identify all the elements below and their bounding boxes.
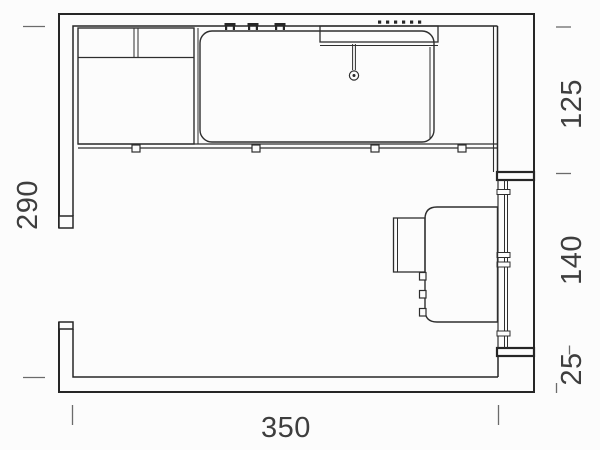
window bbox=[497, 180, 510, 348]
table bbox=[425, 207, 498, 322]
kitchen-run bbox=[78, 21, 497, 173]
pull-cord bbox=[353, 44, 356, 70]
counter-knob-4 bbox=[458, 145, 466, 152]
chair bbox=[394, 218, 426, 272]
dim-label-left: 290 bbox=[12, 180, 44, 230]
inner-wall-bottom bbox=[73, 329, 498, 377]
floor-plan-canvas: 290 125 140 25 350 bbox=[0, 0, 600, 450]
pull-cord-ring-dot bbox=[353, 74, 356, 77]
dim-label-right-top: 125 bbox=[556, 79, 588, 129]
dimension-annotations: 290 125 140 25 350 bbox=[12, 27, 588, 445]
door-jamb-upper bbox=[59, 216, 73, 228]
counter-knob-3 bbox=[371, 145, 379, 152]
wall-cabinet-left bbox=[78, 28, 194, 144]
dim-label-right-bottom: 25 bbox=[556, 352, 588, 385]
table-group bbox=[394, 207, 498, 322]
counter-knob-2 bbox=[252, 145, 260, 152]
window-mullion-top bbox=[497, 190, 510, 195]
window-jamb-lower bbox=[497, 348, 534, 356]
window-jamb-upper bbox=[497, 172, 534, 180]
counter-front-line bbox=[78, 144, 497, 148]
table-knob-2 bbox=[420, 291, 427, 299]
window-mullion-bottom bbox=[497, 331, 510, 336]
floor-plan-drawing: 290 125 140 25 350 bbox=[0, 0, 600, 450]
table-knob-3 bbox=[420, 309, 427, 317]
walls bbox=[59, 14, 534, 392]
table-knob-1 bbox=[420, 273, 427, 281]
dim-label-right-middle: 140 bbox=[556, 235, 588, 285]
hood-shelf bbox=[320, 26, 438, 42]
vent-dots bbox=[378, 21, 421, 24]
window-mullion-mid-2 bbox=[497, 262, 510, 267]
cabinet-divider bbox=[134, 28, 138, 58]
worktop bbox=[200, 31, 434, 142]
outer-wall-boundary bbox=[59, 14, 534, 392]
window-mullion-mid-1 bbox=[497, 253, 510, 258]
counter-knob-1 bbox=[132, 145, 140, 152]
dim-label-bottom: 350 bbox=[261, 412, 311, 444]
door-jamb-lower bbox=[59, 322, 73, 329]
